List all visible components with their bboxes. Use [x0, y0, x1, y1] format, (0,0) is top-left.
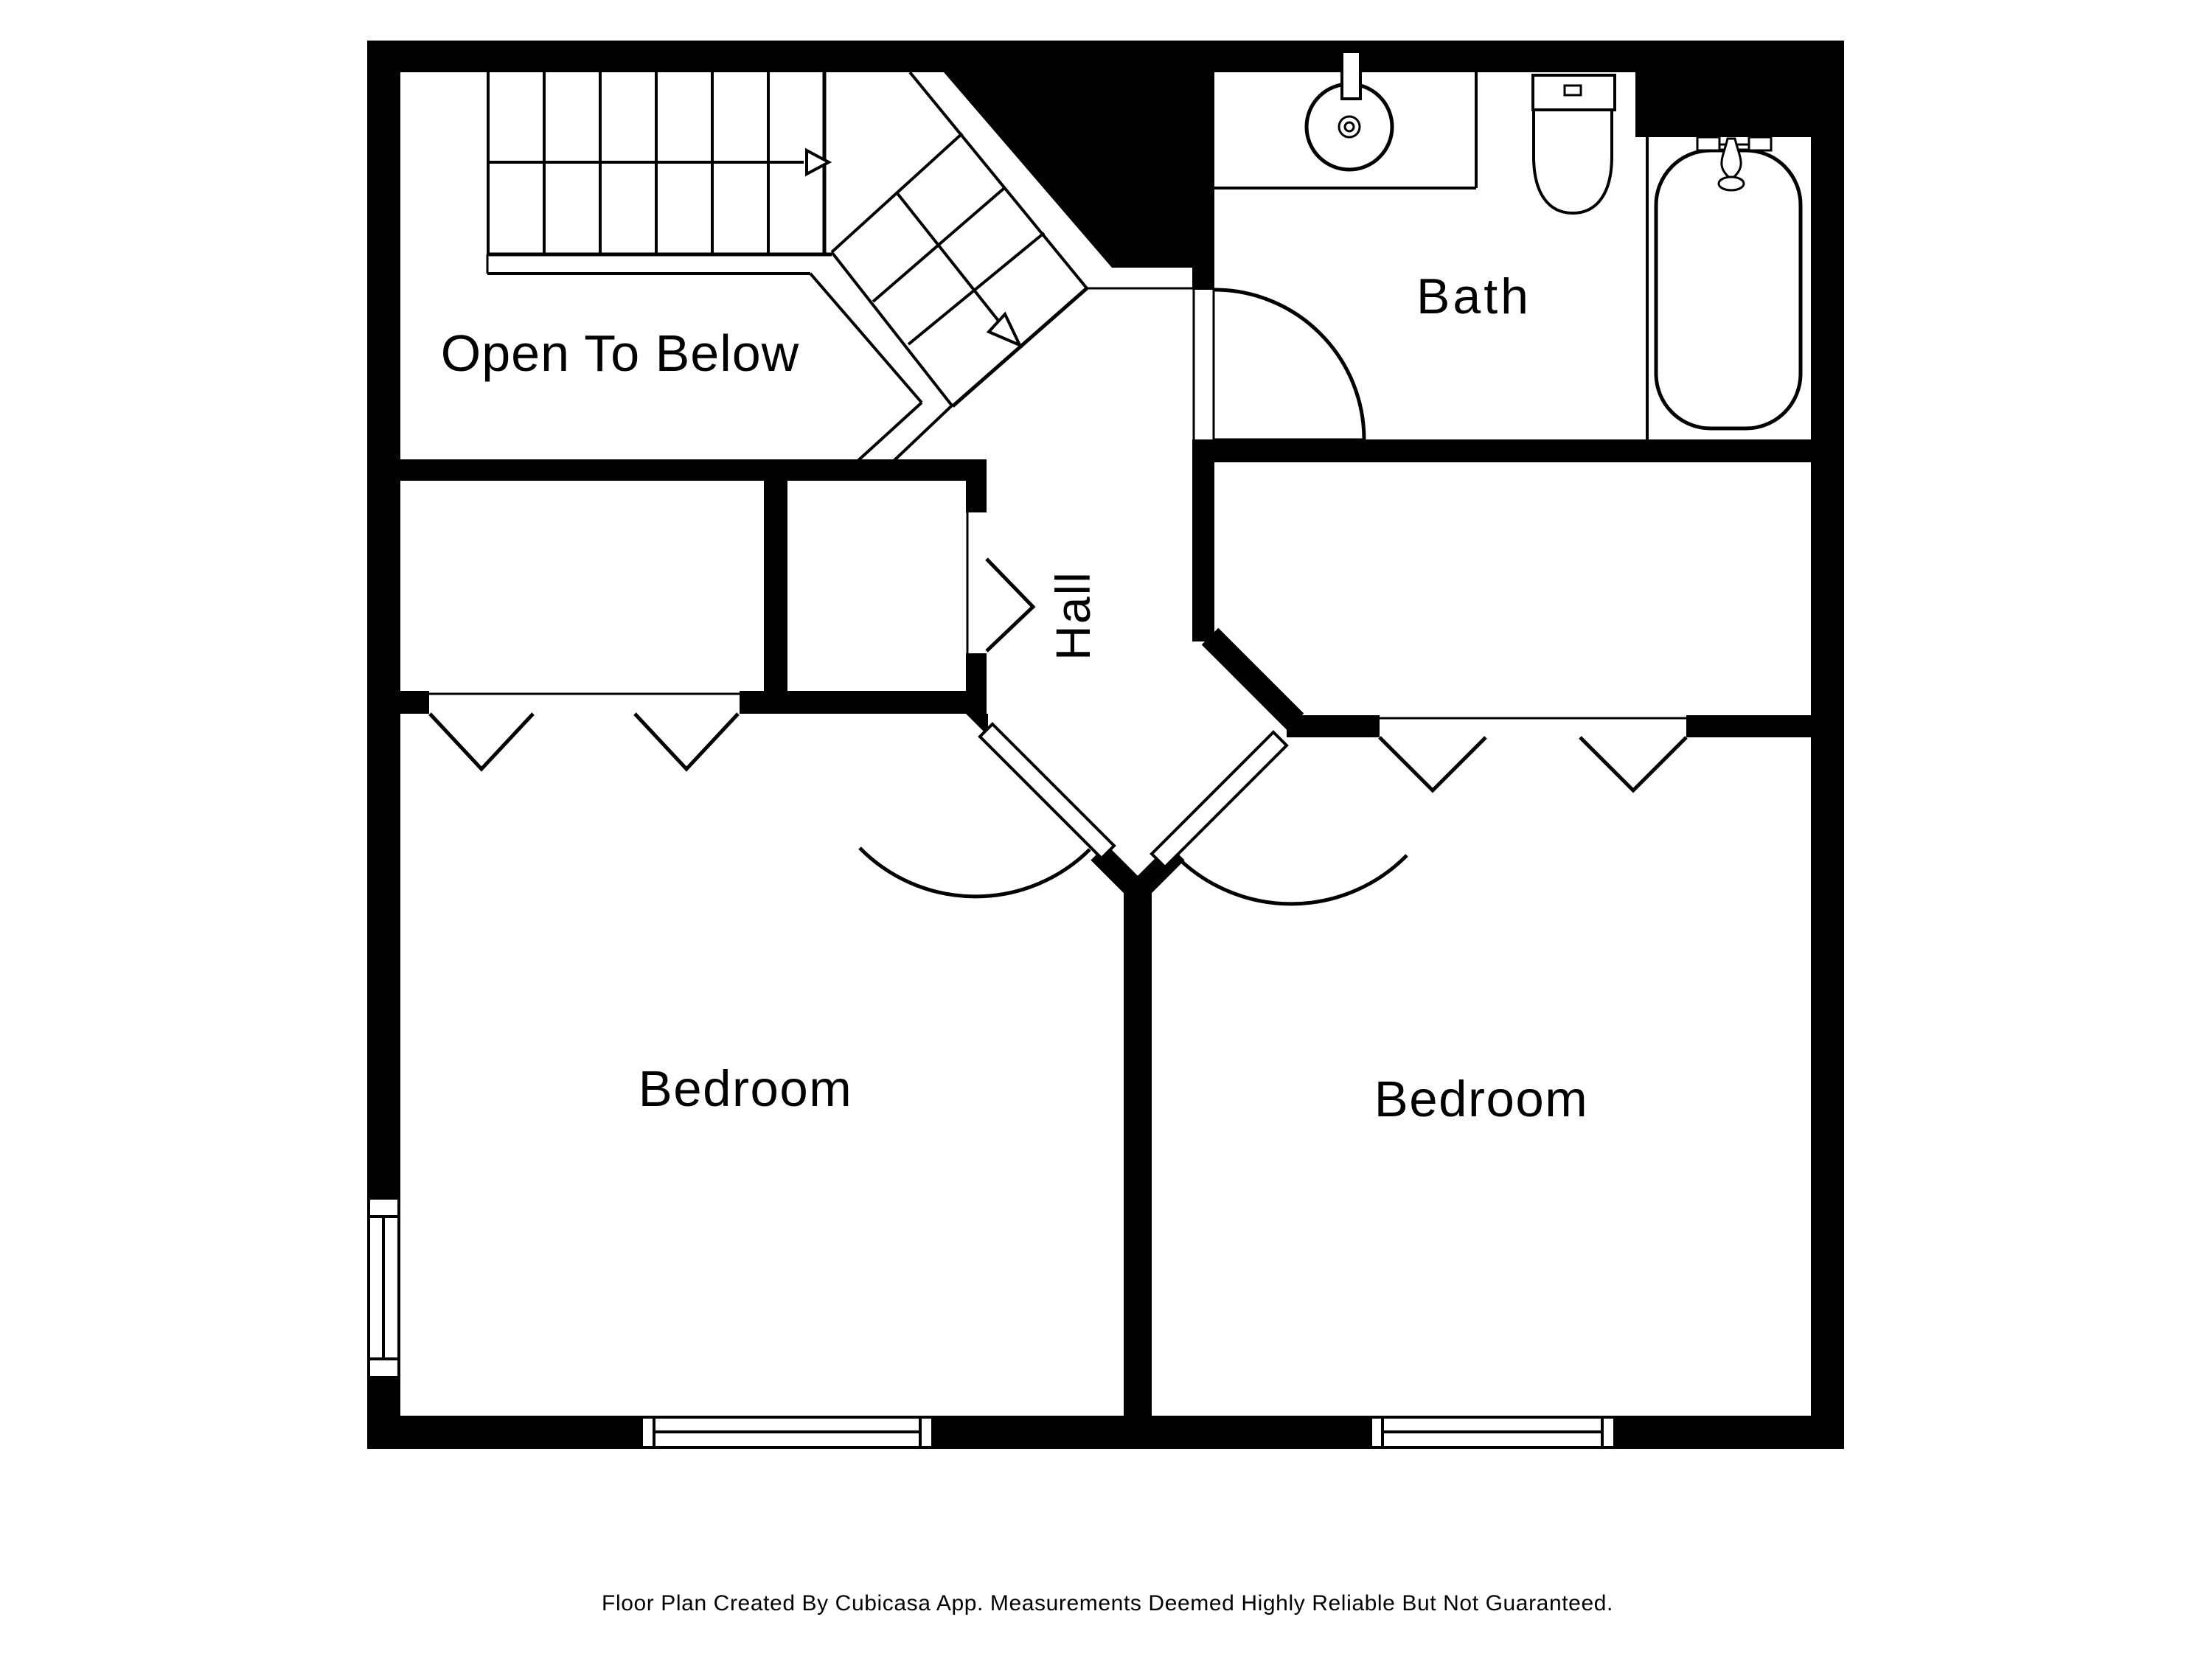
svg-text:Open To Below: Open To Below	[441, 324, 799, 382]
svg-text:Floor Plan Created By Cubicasa: Floor Plan Created By Cubicasa App. Meas…	[602, 1591, 1613, 1615]
svg-text:Bedroom: Bedroom	[639, 1060, 852, 1117]
svg-text:Hall: Hall	[1046, 571, 1100, 661]
svg-text:Bedroom: Bedroom	[1374, 1071, 1588, 1127]
svg-text:Bath: Bath	[1416, 268, 1531, 324]
